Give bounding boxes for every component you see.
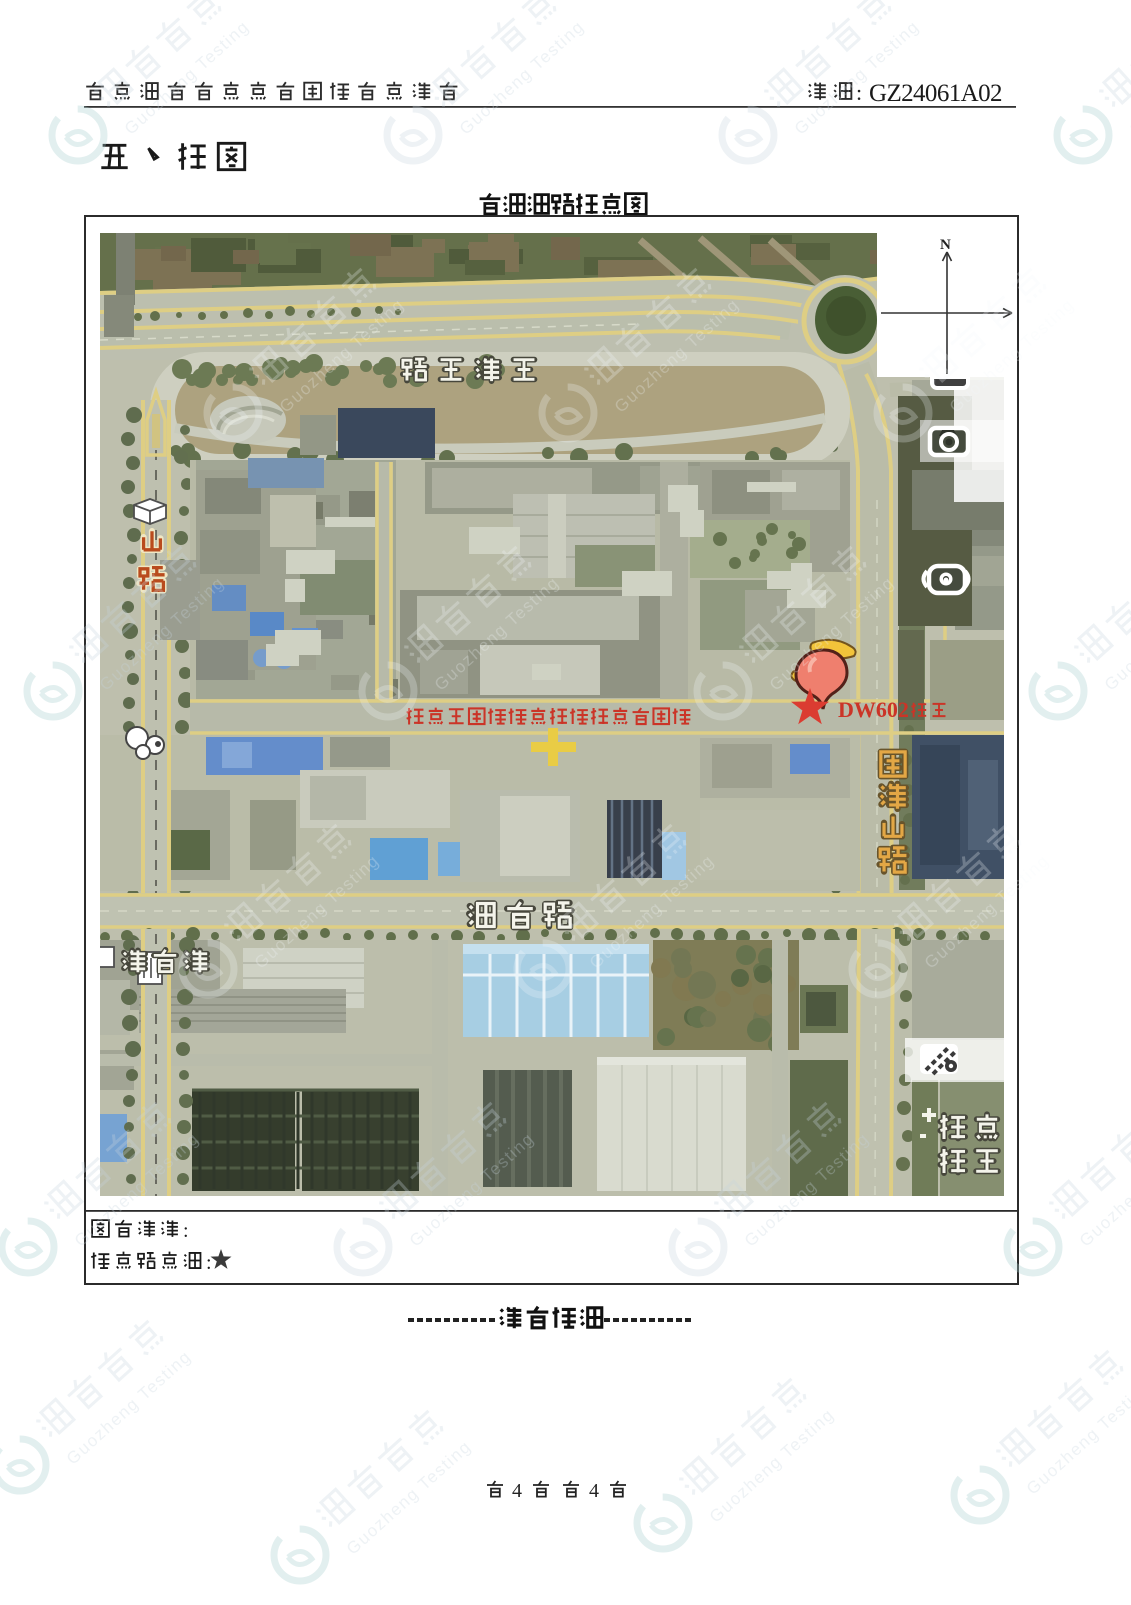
svg-text:4: 4 (512, 1480, 522, 1502)
svg-text:GZ24061A02: GZ24061A02 (869, 80, 1002, 107)
svg-text:Guozheng Testing: Guozheng Testing (1023, 1377, 1131, 1499)
svg-text:N: N (940, 237, 951, 253)
svg-text:4: 4 (589, 1480, 599, 1502)
svg-text::: : (183, 1220, 189, 1242)
svg-text::: : (206, 1252, 212, 1274)
